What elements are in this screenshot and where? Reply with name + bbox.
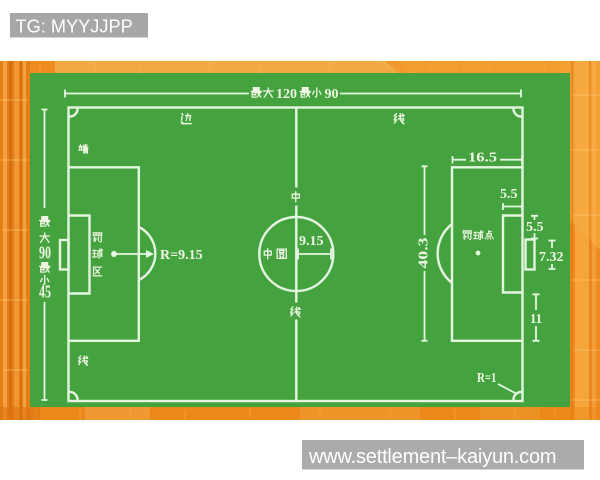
svg-text:5.5: 5.5 xyxy=(526,220,544,235)
svg-text:R=9.15: R=9.15 xyxy=(160,248,203,263)
svg-text:16.5: 16.5 xyxy=(468,151,497,166)
svg-text:5.5: 5.5 xyxy=(500,187,518,202)
svg-text:TG: MYYJJPP: TG: MYYJJPP xyxy=(16,17,133,37)
svg-text:www.settlement–kaiyun.com: www.settlement–kaiyun.com xyxy=(308,446,556,468)
svg-text:7.32: 7.32 xyxy=(539,250,564,265)
svg-text:90: 90 xyxy=(325,87,339,102)
svg-text:9.15: 9.15 xyxy=(299,234,324,249)
svg-text:11: 11 xyxy=(530,312,542,327)
svg-text:120: 120 xyxy=(276,87,297,102)
svg-text:90: 90 xyxy=(39,243,51,263)
svg-text:40.3: 40.3 xyxy=(417,238,432,269)
svg-text:R=1: R=1 xyxy=(477,370,497,385)
